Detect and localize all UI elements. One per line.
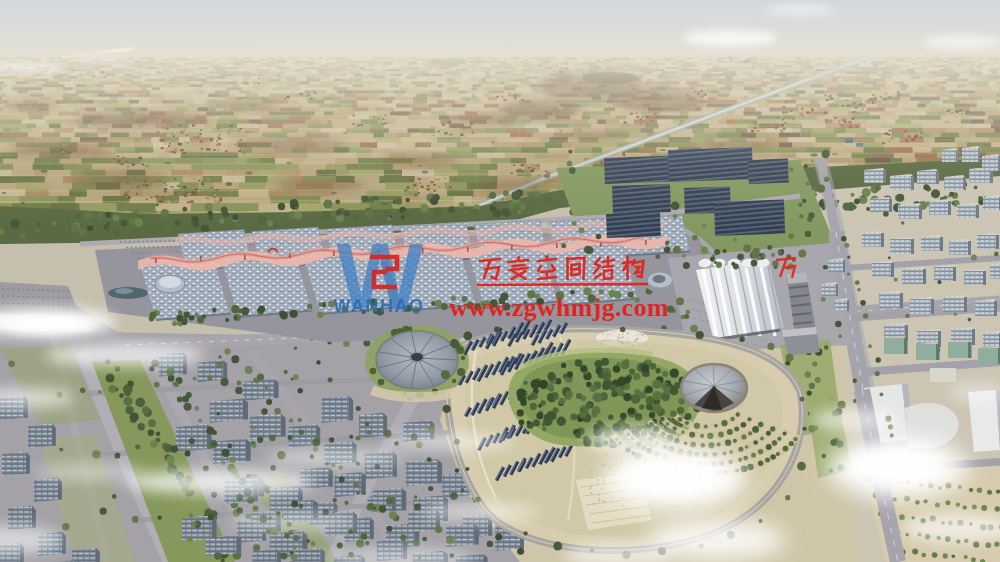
svg-text:www.zgwhmjg.com: www.zgwhmjg.com xyxy=(449,293,669,322)
svg-text:WANHAO: WANHAO xyxy=(334,296,425,316)
